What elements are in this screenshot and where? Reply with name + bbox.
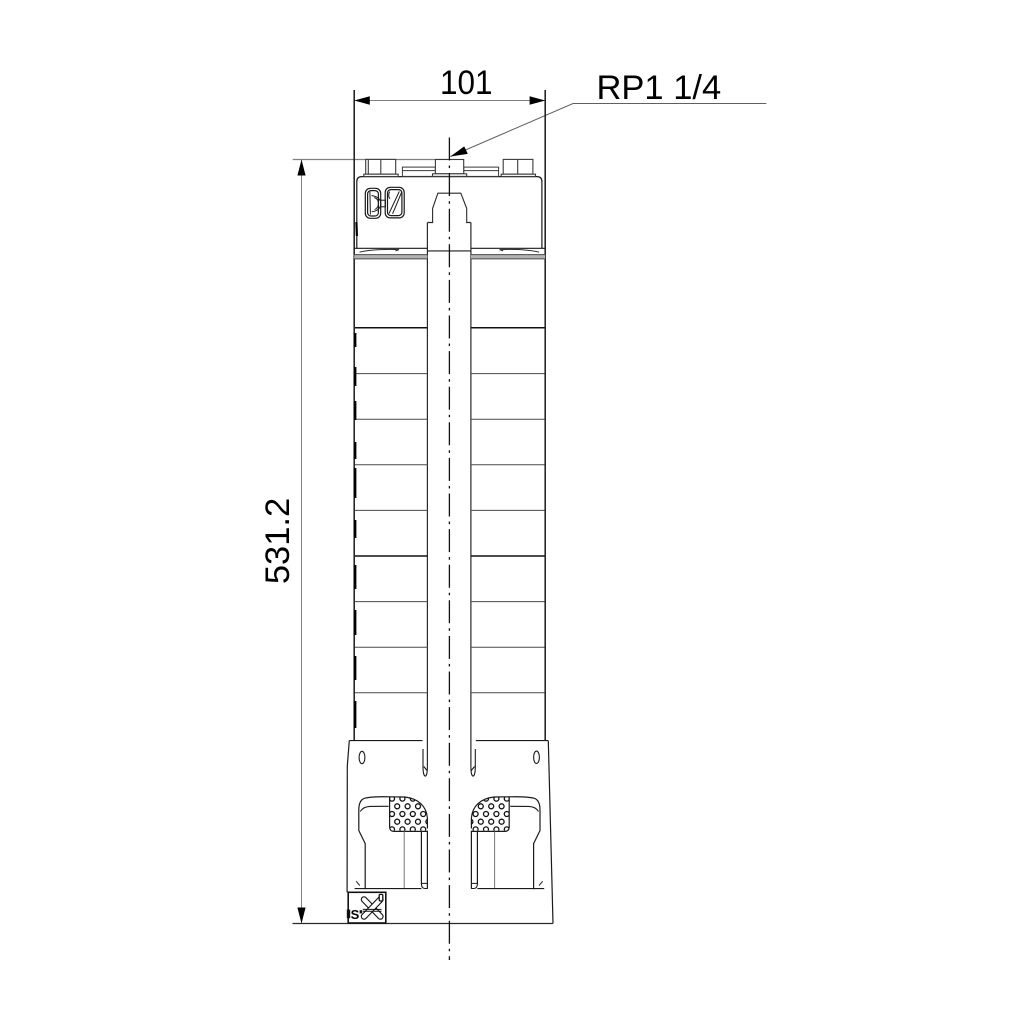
svg-text:101: 101 xyxy=(440,64,493,102)
svg-text:S: S xyxy=(351,907,360,922)
svg-text:RP1 1/4: RP1 1/4 xyxy=(597,69,722,107)
svg-text:531.2: 531.2 xyxy=(259,498,297,584)
